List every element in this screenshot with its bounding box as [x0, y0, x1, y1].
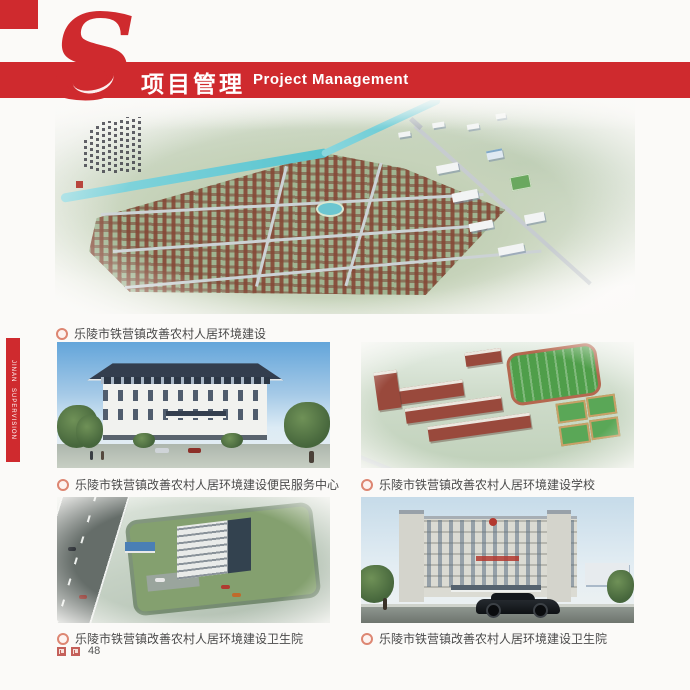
bush-2 — [221, 433, 243, 448]
tree-right — [607, 570, 634, 603]
brochure-page: S 项目管理 Project Management JINAN SUPERVIS… — [0, 0, 690, 690]
pedestrian-1 — [90, 451, 93, 460]
main-aerial-figure — [55, 100, 635, 314]
bullet-circle-icon — [57, 479, 69, 491]
basketball-court-3 — [589, 416, 621, 440]
footer: 48 — [57, 645, 100, 657]
black-sedan — [476, 599, 561, 614]
bullet-circle-icon — [57, 633, 69, 645]
figure-school — [361, 342, 634, 468]
page-number: 48 — [88, 645, 100, 657]
caption-text: 乐陵市铁营镇改善农村人居环境建设学校 — [379, 476, 595, 493]
caption-text: 乐陵市铁营镇改善农村人居环境建设便民服务中心 — [75, 476, 339, 493]
car-white — [155, 448, 169, 453]
main-figure-caption: 乐陵市铁营镇改善农村人居环境建设 — [56, 325, 266, 342]
side-tab-line1: JINAN — [10, 360, 16, 382]
caption-text: 乐陵市铁营镇改善农村人居环境建设卫生院 — [75, 630, 303, 647]
section-title-en: Project Management — [253, 71, 409, 88]
pedestrian-2 — [101, 451, 104, 460]
stair-tower-left — [399, 510, 424, 602]
school-wing-4 — [374, 370, 402, 411]
logo-s: S — [42, 2, 146, 120]
school-dorm — [464, 348, 501, 366]
car-red-1 — [221, 585, 230, 589]
figure-hospital-front — [361, 497, 634, 623]
car-red — [188, 448, 201, 453]
side-tab-line2: SUPERVISION — [10, 388, 16, 440]
caption-text: 乐陵市铁营镇改善农村人居环境建设卫生院 — [379, 630, 607, 647]
main-caption-text: 乐陵市铁营镇改善农村人居环境建设 — [74, 325, 266, 342]
car-dark — [68, 547, 76, 551]
car-red-2 — [79, 595, 87, 599]
entrance-canopy — [166, 411, 226, 418]
figure-caption: 乐陵市铁营镇改善农村人居环境建设便民服务中心 — [57, 476, 339, 493]
figure-clinic-aerial — [57, 497, 330, 623]
building-white-1 — [436, 162, 459, 174]
stair-tower-right — [547, 510, 572, 602]
bullet-circle-icon — [56, 328, 68, 340]
entrance-canopy — [451, 585, 541, 592]
building-white-5 — [498, 243, 525, 256]
section-title-zh: 项目管理 — [141, 65, 245, 99]
pedestrian — [383, 598, 387, 610]
gatehouse-blue-roof — [125, 542, 155, 553]
building-small-1 — [398, 131, 411, 138]
pedestrian-3 — [309, 451, 314, 463]
building-white-4 — [523, 211, 544, 224]
basketball-court-2 — [556, 400, 588, 424]
building-small-3 — [467, 124, 480, 131]
basketball-court-1 — [586, 393, 618, 417]
maze-square-icon — [57, 647, 66, 656]
building-body — [103, 384, 267, 436]
figure-service-center — [57, 342, 330, 468]
basketball-court-4 — [559, 423, 591, 447]
car-white — [155, 578, 165, 582]
building-white-2 — [452, 189, 479, 203]
corner-accent-block — [0, 0, 38, 29]
figure-caption: 乐陵市铁营镇改善农村人居环境建设卫生院 — [361, 630, 607, 647]
calligraphy-inscription — [84, 117, 141, 183]
sports-court — [509, 174, 531, 192]
building-white-3 — [468, 219, 493, 231]
maze-square-icon — [71, 647, 80, 656]
building-small-2 — [433, 121, 446, 128]
figure-caption: 乐陵市铁营镇改善农村人居环境建设学校 — [361, 476, 595, 493]
wheel-front — [486, 603, 501, 618]
car-orange — [232, 593, 241, 597]
red-seal-stamp — [76, 181, 83, 188]
clinic-building — [177, 518, 251, 580]
bullet-circle-icon — [361, 479, 373, 491]
campus-group — [362, 342, 632, 468]
building-small-4 — [496, 113, 507, 120]
bullet-circle-icon — [361, 633, 373, 645]
building-plinth — [103, 435, 267, 440]
red-facade-sign — [476, 556, 520, 561]
pond — [316, 201, 344, 217]
side-tab: JINAN SUPERVISION — [6, 338, 20, 462]
building-blue-roof — [486, 149, 503, 161]
